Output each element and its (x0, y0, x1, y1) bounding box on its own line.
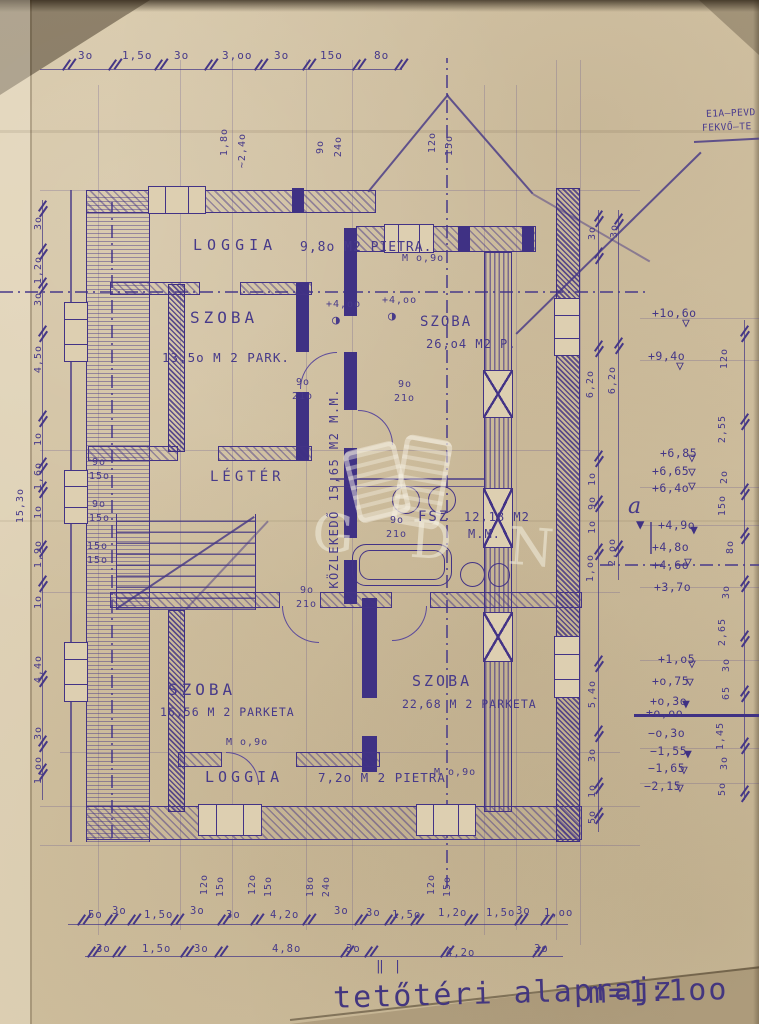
door-dim-width: 9o (398, 380, 412, 390)
dim-label: 2,oo (608, 538, 618, 566)
room-area-loggia-bottom: 7,2o M 2 PIETRA (318, 772, 446, 785)
dim-line-left (42, 200, 43, 800)
elevation-marker-icon: ▽ (688, 480, 696, 493)
loggia-room-wall (110, 282, 200, 295)
paper-crease-1 (0, 130, 759, 133)
dim-label: 65 (722, 686, 732, 700)
dim-label: 3o (112, 906, 127, 917)
dim-label: 5o (718, 782, 728, 796)
room-label-szoba-tr: SZOBA (420, 315, 472, 329)
dim-label: 3o (96, 944, 111, 955)
dim-label: 1,5o (122, 50, 153, 61)
dim-label: 1o (34, 595, 44, 609)
dim-label: 5o (88, 910, 103, 921)
dim-label: 1,45 (716, 722, 726, 750)
elevation-marker-icon: ▽ (688, 452, 696, 465)
elevation-marker-icon: ▽ (688, 466, 696, 479)
room-area-fsz: 12,18 M2 (464, 511, 530, 523)
section-flag-icon: ▼ (636, 518, 644, 532)
sheet-scale: m=1:1oo (588, 972, 729, 1011)
dim-label: 1,5o (142, 944, 171, 955)
door-size-label: M o,9o (402, 254, 444, 264)
dim-label: 8o (726, 540, 736, 554)
right-outer-wall (556, 188, 580, 842)
dim-label: 1,8o (220, 128, 230, 156)
mid-wall (218, 446, 312, 461)
dim-label: 3o (366, 908, 381, 919)
door-dim-width: 9o (390, 516, 404, 526)
dim-label: 1,6o (34, 462, 44, 490)
dim-label: 15o (445, 135, 455, 156)
window (554, 636, 580, 698)
dim-label: 3o (190, 906, 205, 917)
elevation-marker-icon: ▼ (682, 698, 690, 711)
elevation-label: +o,75 (652, 674, 689, 688)
dim-label: 15o (89, 514, 110, 524)
dim-line-bottom2 (85, 956, 563, 957)
dim-label: 1,5o (392, 910, 421, 921)
wall-pier (458, 226, 470, 252)
dim-label: 3o (334, 906, 349, 917)
elevation-marker-icon: ▽ (676, 360, 684, 373)
corridor-wall (344, 352, 357, 410)
door-dim-height: 21o (394, 394, 415, 404)
dim-label: 1,5o (486, 908, 515, 919)
dim-label: 15o (718, 495, 728, 516)
elevation-marker-icon: ▼ (690, 524, 698, 537)
dim-label: 12o (200, 874, 210, 895)
dim-label: 3o (722, 658, 732, 672)
dim-label: 15o (87, 542, 108, 552)
dim-label: 15o (87, 556, 108, 566)
dim-label: 9o (588, 496, 598, 510)
lower-mid-wall (430, 592, 582, 608)
guide-line (232, 60, 233, 920)
room-label-kozlekedo: KÖZLEKEDŐ 15,65 M2 M.M. (328, 388, 340, 589)
bottom-loggia-wall (296, 752, 380, 767)
room-label-fsz: FSZ (418, 510, 449, 524)
dim-label: 3o (34, 292, 44, 306)
elevation-label: +3,7o (654, 580, 691, 594)
dim-label: 1o (34, 432, 44, 446)
chimney-flue-box (483, 612, 513, 662)
door-dim-height: 21o (292, 392, 313, 402)
section-flag-pole (650, 522, 652, 554)
elevation-marker-icon: ▽ (688, 658, 696, 671)
dim-label: 3o (174, 50, 189, 61)
dim-label: 1o (588, 472, 598, 486)
room-area-szoba-br: 22,68 M 2 PARKETA (402, 699, 537, 711)
dim-label: 3o (274, 50, 289, 61)
elevation-label: +6,65 (652, 464, 689, 478)
section-marker-label: a (628, 496, 642, 518)
guide-line (516, 85, 517, 930)
dim-line-right2 (618, 210, 619, 580)
dim-label: 8o (374, 50, 389, 61)
dim-line-right1 (598, 210, 599, 832)
door-dim-height: 21o (296, 600, 317, 610)
left-room-wall-upper (168, 284, 185, 452)
dim-label: 5,4o (588, 680, 598, 708)
dim-label: 1,2o (34, 256, 44, 284)
door-dim-height: 21o (386, 530, 407, 540)
elevation-marker-icon: ▽ (676, 782, 684, 795)
elevation-marker-icon: ▽ (680, 764, 688, 777)
dim-label: 24o (322, 876, 332, 897)
elevation-marker-icon: ▽ (682, 317, 690, 330)
lower-mid-wall (320, 592, 392, 608)
room-label-szoba-bl: SZOBA (168, 682, 236, 698)
dim-label: 3o (346, 944, 361, 955)
dim-label: 12o (427, 874, 437, 895)
level-point-icon: ◑ (332, 314, 341, 327)
paper-edge-right (753, 0, 759, 1024)
level-label: +4,oo (326, 300, 361, 310)
dim-label: 6,2o (608, 366, 618, 394)
window (198, 804, 262, 836)
elevation-label: −1,55 (650, 744, 687, 758)
door-dim-width: 9o (300, 586, 314, 596)
dim-label: 3o (194, 944, 209, 955)
dim-label: 4,4o (34, 655, 44, 683)
dim-label: 6,2o (586, 370, 596, 398)
dim-label: 18o (306, 876, 316, 897)
dim-label: 3o (722, 585, 732, 599)
dim-label: 15o (320, 50, 343, 61)
wall-pier (292, 188, 304, 213)
dim-label: 9o (92, 500, 106, 510)
elevation-label: −o,3o (648, 726, 685, 740)
room-area-szoba-tl: 13,5o M 2 PARK. (162, 352, 290, 365)
elevation-label: ±o,oo (646, 706, 683, 720)
dim-label: 3o (588, 226, 598, 240)
dim-line-farright (744, 320, 745, 800)
dim-label: 4,5o (34, 345, 44, 373)
door-size-label: M o,9o (226, 738, 268, 748)
dim-label: 15o (216, 876, 226, 897)
dim-label: 3o (588, 748, 598, 762)
scanned-blueprint-page: { "meta": {"sheet_title": "tetőtéri alap… (0, 0, 759, 1024)
elevation-marker-icon: ▽ (684, 556, 692, 569)
door-dim-width: 9o (296, 378, 310, 388)
elevation-marker-icon: ▽ (686, 676, 694, 689)
dim-label: 3o (516, 906, 531, 917)
room-area-szoba-tr: 26,o4 M2 P. (426, 338, 516, 350)
dim-label: 9o (92, 458, 106, 468)
elevation-label: +6,4o (652, 481, 689, 495)
window (554, 298, 580, 356)
dim-label: 15o (89, 472, 110, 482)
note-line-2: FEKVŐ–TE (702, 121, 752, 134)
guide-line (40, 845, 640, 846)
door-size-label: M o,9o (434, 768, 476, 778)
room-label-szoba-tl: SZOBA (190, 310, 258, 326)
dim-label: 4,2o (446, 948, 475, 959)
dim-label: 1,9o (34, 540, 44, 568)
dim-label: 2,65 (718, 618, 728, 646)
dim-label: 4,8o (272, 944, 301, 955)
room-divider-wall (362, 598, 377, 698)
dim-label: 2,55 (718, 415, 728, 443)
dim-label: ~2,4o (238, 133, 248, 168)
window (64, 642, 88, 702)
note-line-1: E1A–PEVD (706, 107, 756, 120)
dim-line-top (40, 69, 402, 70)
room-label-legter: LÉGTÉR (210, 470, 285, 484)
dim-label: 1,oo (586, 554, 596, 582)
room-mat-fsz: M.M. (468, 528, 501, 540)
dim-label: 3o (34, 216, 44, 230)
dim-label: 3o (534, 944, 549, 955)
chimney-flue-box (483, 370, 513, 418)
dim-label: 3o (78, 50, 93, 61)
dim-label: 1o (34, 505, 44, 519)
wall-pier (522, 226, 534, 252)
room-label-loggia-top: LOGGIA (193, 238, 277, 253)
window (64, 470, 88, 524)
dim-label: 3o (34, 726, 44, 740)
dim-label: 2o (720, 470, 730, 484)
window (416, 804, 476, 836)
dim-label: 1,oo (34, 756, 44, 784)
dim-label: 1,5o (144, 910, 173, 921)
dim-label: 15o (443, 876, 453, 897)
dim-label: 3,oo (222, 50, 253, 61)
loggia-room-wall (240, 282, 312, 295)
window (148, 186, 206, 214)
paper-fold-line (30, 0, 32, 1024)
dim-label: 3o (720, 756, 730, 770)
dim-label: 24o (334, 136, 344, 157)
level-point-icon: ◑ (388, 310, 397, 323)
dim-label: 12o (720, 348, 730, 369)
dim-label: 12o (248, 874, 258, 895)
dim-label: 1o (588, 784, 598, 798)
dim-label: 3o (226, 910, 241, 921)
dim-label: 4,2o (270, 910, 299, 921)
dim-label: 5o (588, 810, 598, 824)
dim-label: 12o (428, 132, 438, 153)
dim-label: 15o (264, 876, 274, 897)
dim-label: 3o (610, 224, 620, 238)
bottom-wall (86, 806, 582, 840)
dim-line-bottom1 (68, 924, 568, 925)
window (64, 302, 88, 362)
room-label-loggia-bottom: LOGGIA (205, 770, 283, 785)
top-wall (86, 190, 376, 213)
elevation-marker-icon: ▼ (684, 748, 692, 761)
revision-marks: ‖ | (376, 960, 402, 973)
bottom-loggia-wall (178, 752, 222, 767)
dim-label: 15,3o (16, 488, 26, 523)
dim-label: 9o (316, 140, 326, 154)
level-label: +4,oo (382, 296, 417, 306)
room-label-szoba-br: SZOBA (412, 674, 472, 689)
dim-label: 1o (588, 520, 598, 534)
dim-label: 1,oo (544, 908, 573, 919)
dim-label: 1,2o (438, 908, 467, 919)
elevation-label: +4,8o (652, 540, 689, 554)
room-area-szoba-bl: 16,56 M 2 PARKETA (160, 707, 295, 719)
